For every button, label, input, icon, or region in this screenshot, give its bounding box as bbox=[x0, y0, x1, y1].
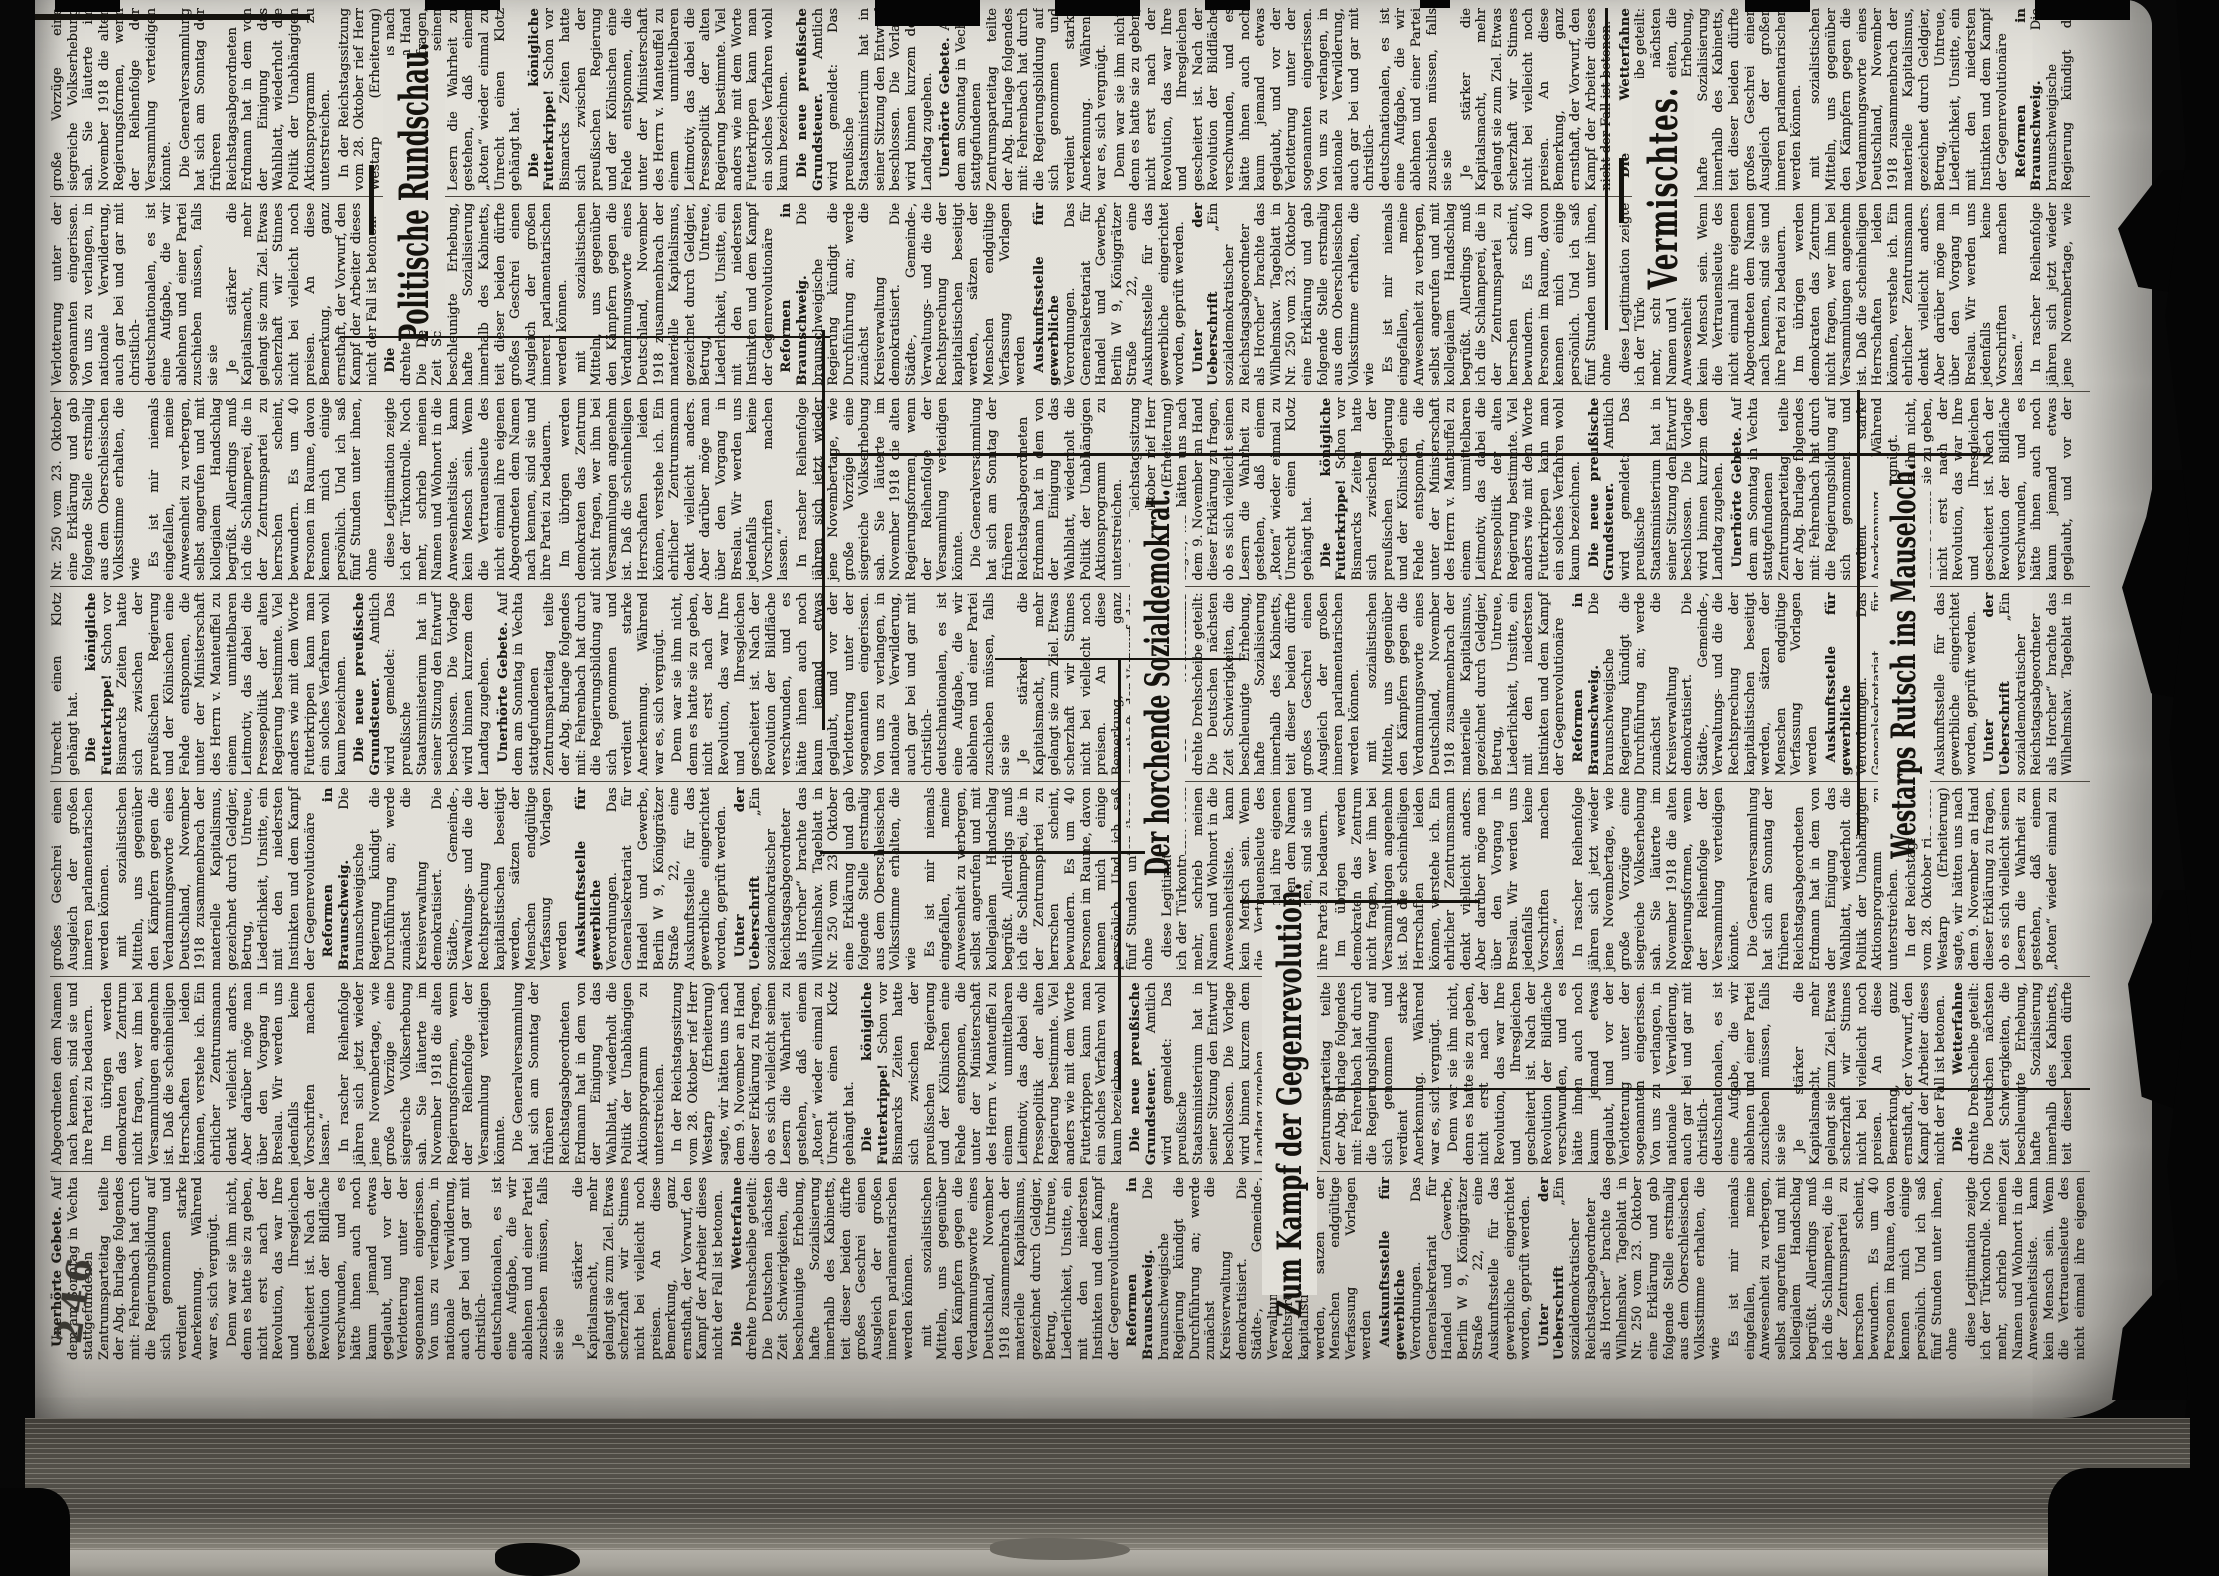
headline-vermischtes: Vermischtes. bbox=[1632, 78, 1694, 298]
body-paragraph: Unerhörte Gebete. Auf dem am Sonntag in … bbox=[938, 8, 1110, 191]
body-paragraph: Es ist mir niemals eingefallen, meine An… bbox=[147, 398, 381, 581]
film-edge-mark bbox=[425, 0, 500, 10]
body-paragraph: Reformen in Braunschweig. Die braunschwe… bbox=[321, 787, 571, 970]
body-paragraph: In rascher Reihenfolge jähren sich jetzt… bbox=[795, 398, 967, 581]
headline-politische-rundschau: Politische Rundschau. bbox=[383, 55, 445, 330]
body-paragraph: mit sozialistischen Mitteln, uns gegenüb… bbox=[920, 1177, 1123, 1360]
shadow-blotch bbox=[990, 1538, 1130, 1560]
body-paragraph: Es ist mir niemals eingefallen, meine An… bbox=[923, 787, 1157, 970]
body-paragraph: Die königliche Futterkrippe! Schon vor B… bbox=[1319, 398, 1584, 581]
film-edge-mark bbox=[1055, 0, 1140, 16]
column-rule-segment bbox=[1325, 1088, 2090, 1090]
body-paragraph: Auskunftsstelle für gewerbliche Verordnu… bbox=[1032, 203, 1188, 386]
body-paragraph: Reformen in Braunschweig. Die braunschwe… bbox=[779, 203, 1029, 386]
body-paragraph: Unter der Ueberschrift „Ein sozialdemokr… bbox=[1191, 203, 1378, 386]
article-separator-rule bbox=[1118, 660, 1121, 1090]
body-paragraph: Es ist mir niemals eingefallen, meine An… bbox=[1381, 203, 1615, 386]
body-paragraph: Denn war sie ihm nicht, denn es hatte si… bbox=[225, 1177, 568, 1360]
corner-shadow bbox=[0, 1488, 70, 1576]
article-separator-rule bbox=[1857, 390, 1860, 835]
body-paragraph: Je stärker die Kapitalsmacht, mehr gelan… bbox=[225, 203, 381, 386]
body-paragraph: Es ist mir niemals eingefallen, meine An… bbox=[1727, 1177, 1961, 1360]
film-edge-mark bbox=[1205, 0, 1250, 10]
film-edge-mark bbox=[1745, 0, 1810, 12]
body-paragraph: Die Generalversammlung hat sich am Sonnt… bbox=[969, 398, 1125, 581]
column-rule-segment bbox=[830, 453, 1990, 456]
body-paragraph: Im übrigen werden demokraten das Zentrum… bbox=[100, 982, 334, 1165]
body-paragraph: Die königliche Futterkrippe! Schon vor B… bbox=[84, 593, 349, 776]
article-separator-rule bbox=[1605, 8, 1608, 330]
book-page-stack bbox=[25, 1418, 2190, 1550]
body-paragraph: Je stärker die Kapitalsmacht, mehr gelan… bbox=[1459, 8, 1615, 191]
body-paragraph: Die Generalversammlung hat sich am Sonnt… bbox=[178, 8, 334, 191]
film-edge-mark bbox=[55, 0, 120, 12]
rotated-page-content: Unerhörte Gebete. Auf dem am Sonntag in … bbox=[35, 0, 2152, 1390]
headline-text: Westarps Rutsch ins Mauseloch. bbox=[1884, 463, 1924, 859]
headline-text: Zum Kampf der Gegenrevolution. bbox=[1270, 883, 1310, 1317]
body-paragraph: Denn war sie ihm nicht, denn es hatte si… bbox=[1113, 8, 1456, 191]
column-rule-segment bbox=[340, 336, 830, 338]
body-paragraph: Auskunftsstelle für gewerbliche Verordnu… bbox=[574, 787, 730, 970]
body-paragraph: Die Wetterfahne drehte Drehscheibe getei… bbox=[730, 1177, 917, 1360]
body-paragraph: Unerhörte Gebete. Auf dem am Sonntag in … bbox=[496, 593, 668, 776]
body-paragraph: Die Wetterfahne drehte Drehscheibe getei… bbox=[1175, 593, 1362, 776]
body-paragraph: mit sozialistischen Mitteln, uns gegenüb… bbox=[574, 203, 777, 386]
column-rule-segment bbox=[820, 851, 1145, 854]
body-paragraph: Reformen in Braunschweig. Die braunschwe… bbox=[1125, 1177, 1375, 1360]
headline-kampf-gegenrevolution: Zum Kampf der Gegenrevolution. bbox=[1262, 905, 1317, 1295]
body-paragraph: Je stärker die Kapitalsmacht, mehr gelan… bbox=[571, 1177, 727, 1360]
headline-horchender-sozialdemokrat: Der horchende Sozialdemokrat. bbox=[1130, 510, 1185, 855]
body-paragraph: Unter der Ueberschrift „Ein sozialdemokr… bbox=[1537, 1177, 1724, 1360]
film-edge-mark bbox=[875, 0, 980, 26]
body-paragraph: Die neue preußische Grundsteuer. Amtlich… bbox=[352, 593, 492, 776]
scan-frame: Unerhörte Gebete. Auf dem am Sonntag in … bbox=[0, 0, 2219, 1576]
body-paragraph: In rascher Reihenfolge jähren sich jetzt… bbox=[1571, 787, 1743, 970]
article-separator-rule bbox=[822, 330, 825, 730]
headline-text: Der horchende Sozialdemokrat. bbox=[1138, 489, 1178, 876]
body-paragraph: Die neue preußische Grundsteuer. Amtlich… bbox=[1128, 982, 1268, 1165]
body-paragraph: Reformen in Braunschweig. Die braunschwe… bbox=[1571, 593, 1821, 776]
body-paragraph: Die Generalversammlung hat sich am Sonnt… bbox=[511, 982, 667, 1165]
body-paragraph: Die neue preußische Grundsteuer. Amtlich… bbox=[795, 8, 935, 191]
body-paragraph: Die königliche Futterkrippe! Schon vor B… bbox=[527, 8, 792, 191]
body-paragraph: Unerhörte Gebete. Auf dem am Sonntag in … bbox=[1730, 398, 1902, 581]
body-paragraph: mit sozialistischen Mitteln, uns gegenüb… bbox=[1365, 593, 1568, 776]
headline-text: Politische Rundschau. bbox=[391, 43, 438, 343]
body-paragraph: Auskunftsstelle für gewerbliche Verordnu… bbox=[1378, 1177, 1534, 1360]
body-paragraph: In rascher Reihenfolge jähren sich jetzt… bbox=[337, 982, 509, 1165]
headline-text: Vermischtes. bbox=[1640, 87, 1687, 290]
film-edge-mark bbox=[1420, 0, 1450, 8]
body-paragraph: diese Legitimation zeigte ich der Türkon… bbox=[383, 398, 555, 581]
newspaper-page: Unerhörte Gebete. Auf dem am Sonntag in … bbox=[35, 0, 2152, 1418]
column-rule-segment bbox=[1240, 900, 1480, 903]
body-paragraph: In der Reichstagssitzung vom 28. Oktober… bbox=[670, 982, 857, 1165]
section-divider-dash bbox=[1619, 158, 1624, 223]
body-paragraph: Im übrigen werden demokraten das Zentrum… bbox=[1792, 203, 2026, 386]
body-paragraph: Im übrigen werden demokraten das Zentrum… bbox=[1334, 787, 1568, 970]
body-paragraph: mit sozialistischen Mitteln, uns gegenüb… bbox=[115, 787, 318, 970]
corner-shadow bbox=[2048, 1468, 2219, 1576]
shadow-blotch bbox=[495, 1543, 580, 1576]
body-paragraph: Die neue preußische Grundsteuer. Amtlich… bbox=[1587, 398, 1727, 581]
page-border-rule bbox=[35, 14, 310, 20]
body-paragraph: mit sozialistischen Mitteln, uns gegenüb… bbox=[1808, 8, 2011, 191]
body-paragraph: Die königliche Futterkrippe! Schon vor B… bbox=[860, 982, 1125, 1165]
body-paragraph: Je stärker die Kapitalsmacht, mehr gelan… bbox=[1792, 982, 1948, 1165]
headline-westarps-rutsch: Westarps Rutsch ins Mauseloch. bbox=[1878, 483, 1930, 838]
section-divider-dash bbox=[369, 165, 374, 235]
film-edge-mark bbox=[2035, 0, 2130, 20]
body-paragraph: Unter der Ueberschrift „Ein sozialdemokr… bbox=[733, 787, 920, 970]
body-paragraph: Denn war sie ihm nicht, denn es hatte si… bbox=[670, 593, 1013, 776]
body-text-columns: Unerhörte Gebete. Auf dem am Sonntag in … bbox=[50, 8, 2090, 1360]
body-paragraph: Denn war sie ihm nicht, denn es hatte si… bbox=[1446, 982, 1789, 1165]
body-paragraph: Im übrigen werden demokraten das Zentrum… bbox=[558, 398, 792, 581]
